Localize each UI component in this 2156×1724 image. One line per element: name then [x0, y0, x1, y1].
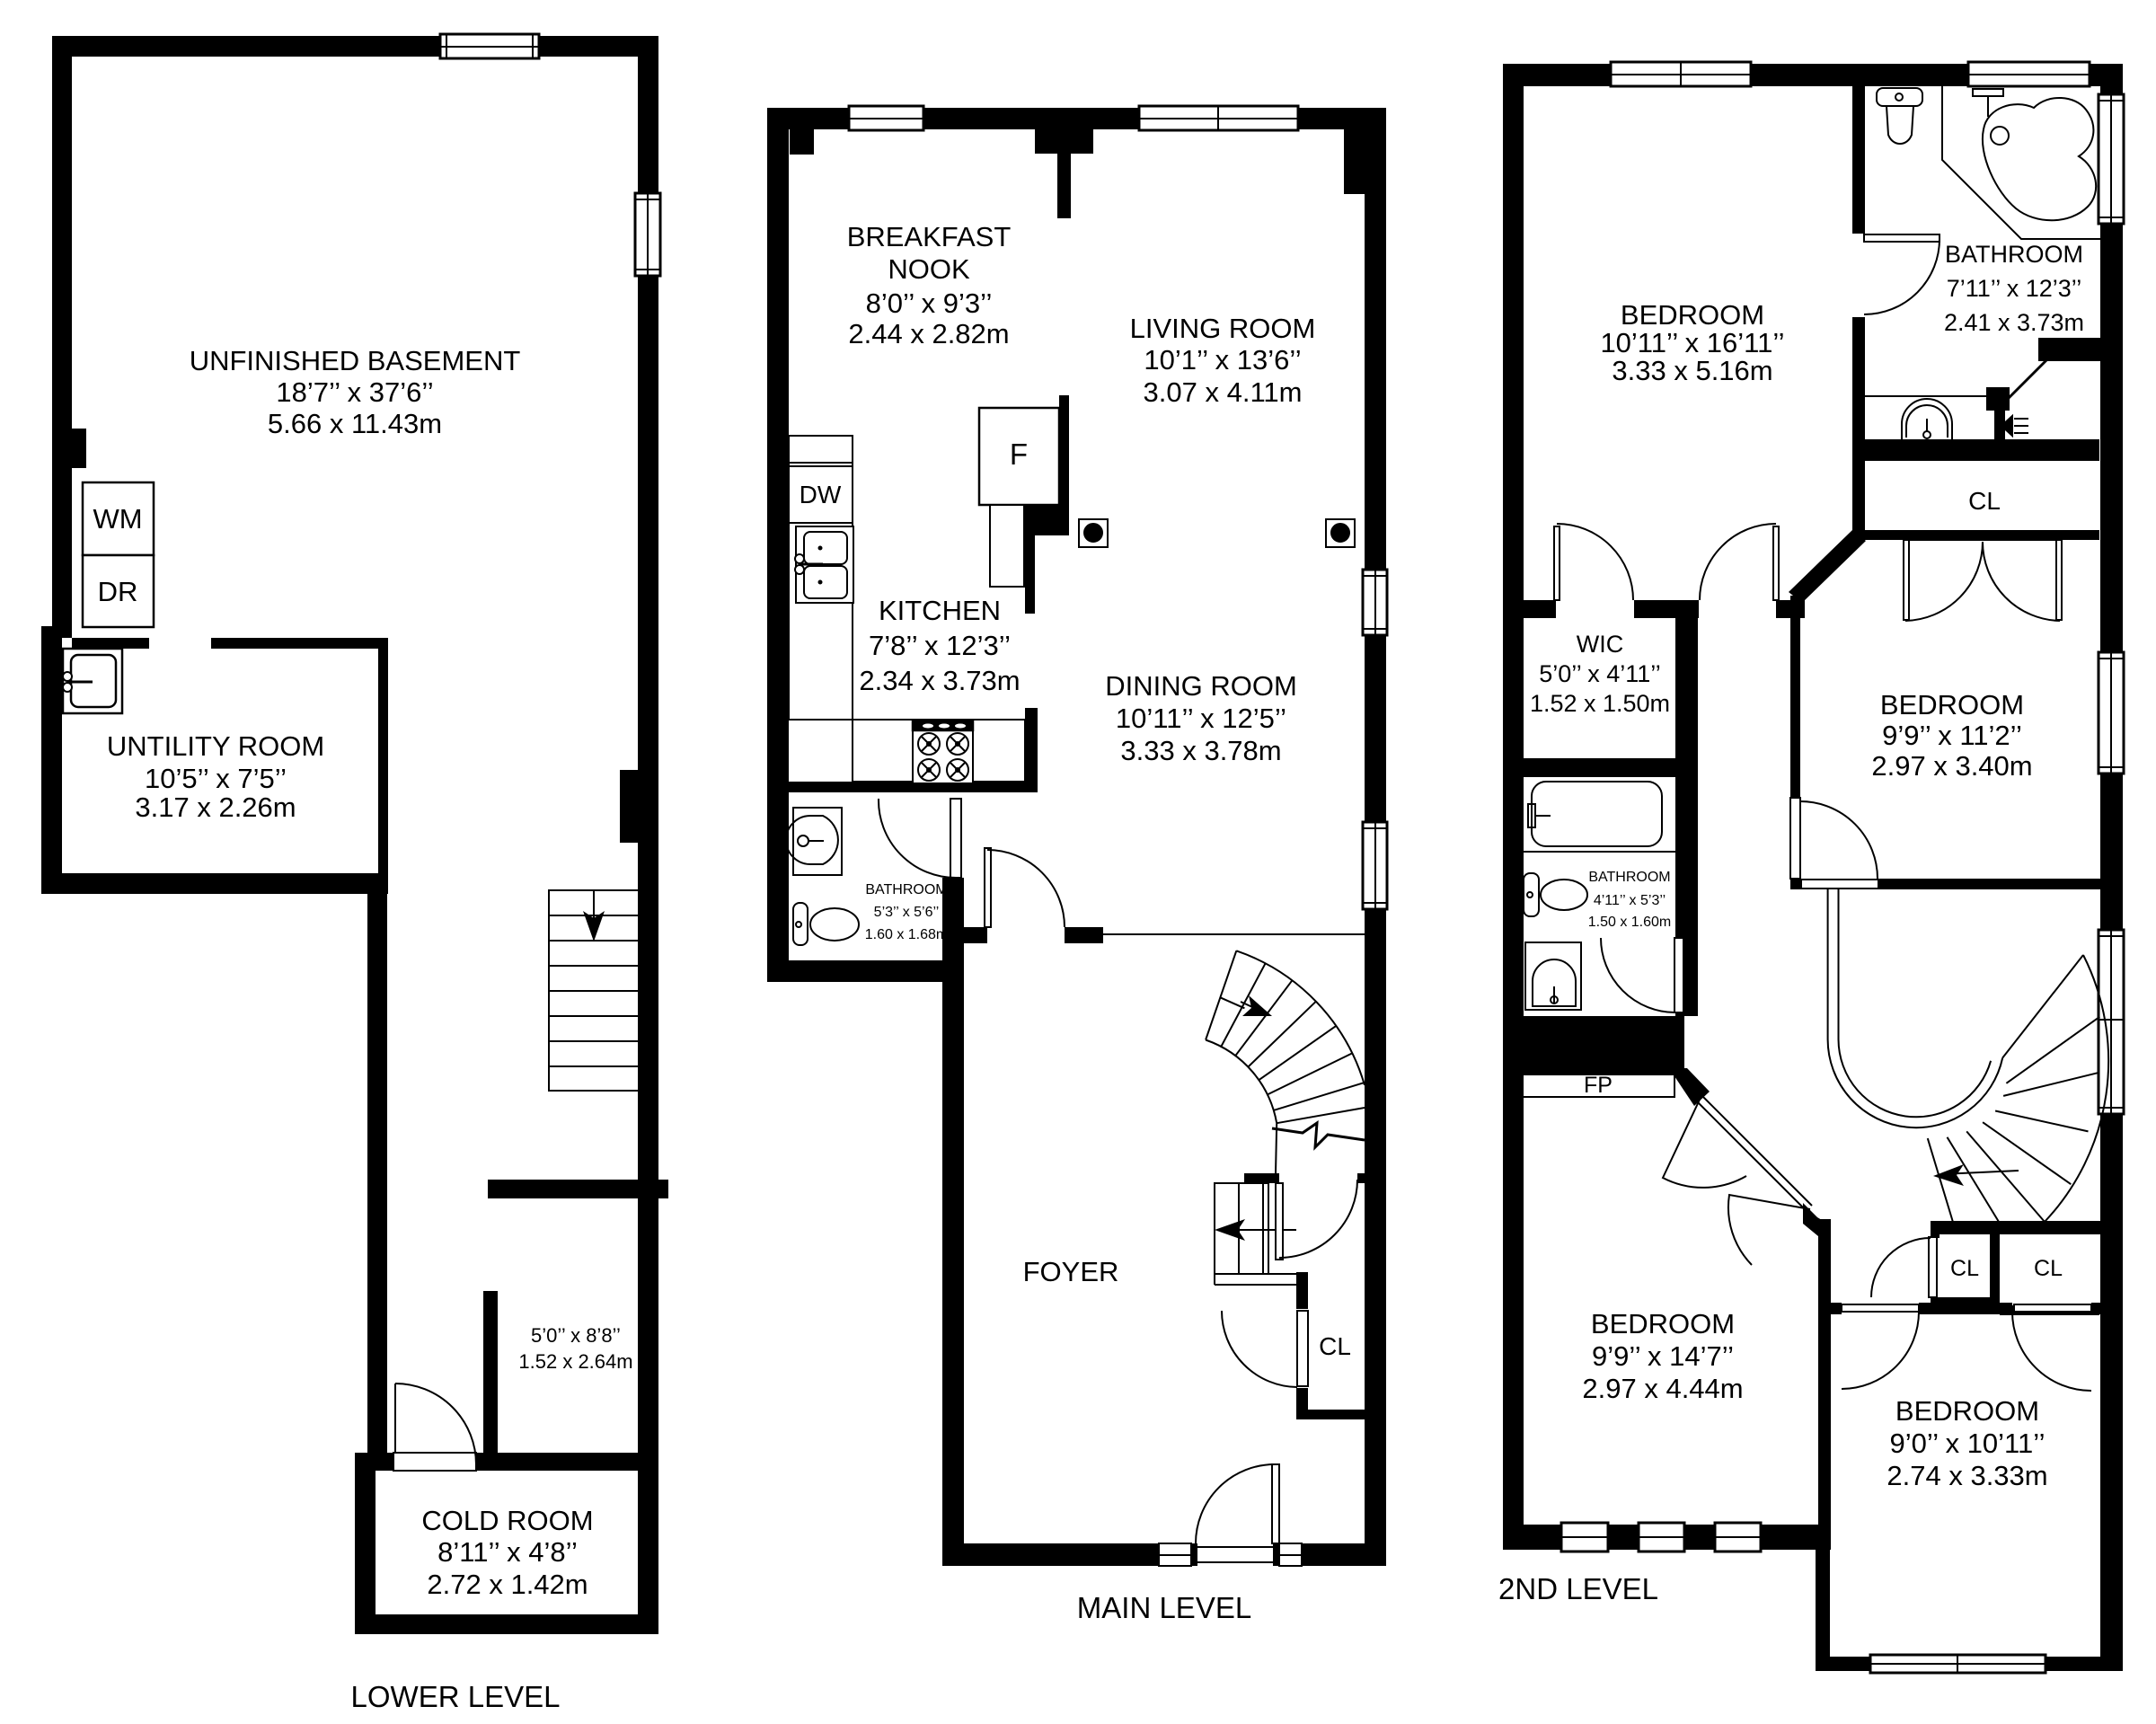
- svg-text:2.34 x 3.73m: 2.34 x 3.73m: [859, 665, 1020, 696]
- svg-text:2ND LEVEL: 2ND LEVEL: [1498, 1572, 1658, 1605]
- svg-text:2.97 x 4.44m: 2.97 x 4.44m: [1582, 1373, 1743, 1404]
- svg-text:10’11’’ x 16’11’’: 10’11’’ x 16’11’’: [1600, 327, 1784, 358]
- svg-text:BEDROOM: BEDROOM: [1895, 1395, 2039, 1427]
- svg-text:3.33 x 5.16m: 3.33 x 5.16m: [1612, 355, 1772, 386]
- svg-text:3.07 x 4.11m: 3.07 x 4.11m: [1144, 376, 1303, 408]
- svg-text:5’0’’ x 8’8’’: 5’0’’ x 8’8’’: [531, 1324, 621, 1347]
- svg-text:10’11’’ x 12’5’’: 10’11’’ x 12’5’’: [1116, 703, 1286, 734]
- svg-text:BATHROOM: BATHROOM: [1588, 870, 1670, 885]
- svg-text:BEDROOM: BEDROOM: [1880, 689, 2024, 721]
- svg-text:NOOK: NOOK: [888, 253, 970, 285]
- svg-text:CL: CL: [2034, 1256, 2063, 1281]
- svg-text:8’0’’ x 9’3’’: 8’0’’ x 9’3’’: [866, 287, 993, 319]
- svg-text:2.74 x 3.33m: 2.74 x 3.33m: [1886, 1460, 2047, 1491]
- svg-text:2.44 x 2.82m: 2.44 x 2.82m: [848, 318, 1009, 349]
- svg-text:1.50 x 1.60m: 1.50 x 1.60m: [1588, 915, 1672, 930]
- svg-text:2.97 x 3.40m: 2.97 x 3.40m: [1871, 750, 2032, 782]
- svg-text:COLD ROOM: COLD ROOM: [421, 1505, 593, 1536]
- svg-text:WM: WM: [93, 503, 142, 535]
- svg-text:5’3’’ x 5’6’’: 5’3’’ x 5’6’’: [874, 905, 940, 920]
- svg-text:UNTILITY ROOM: UNTILITY ROOM: [107, 730, 324, 762]
- svg-text:BREAKFAST: BREAKFAST: [847, 221, 1012, 252]
- svg-text:5’0’’ x 4’11’’: 5’0’’ x 4’11’’: [1539, 660, 1661, 687]
- svg-text:LOWER LEVEL: LOWER LEVEL: [351, 1680, 561, 1713]
- svg-text:9’9’’ x 14’7’’: 9’9’’ x 14’7’’: [1592, 1340, 1734, 1372]
- svg-text:2.72 x 1.42m: 2.72 x 1.42m: [427, 1569, 588, 1600]
- svg-text:FP: FP: [1584, 1073, 1613, 1098]
- svg-text:10’1’’ x 13’6’’: 10’1’’ x 13’6’’: [1144, 344, 1301, 376]
- svg-text:CL: CL: [1950, 1256, 1979, 1281]
- svg-text:9’0’’ x 10’11’’: 9’0’’ x 10’11’’: [1890, 1428, 2046, 1459]
- svg-text:9’9’’ x 11’2’’: 9’9’’ x 11’2’’: [1882, 720, 2022, 751]
- svg-text:BEDROOM: BEDROOM: [1621, 299, 1764, 331]
- svg-text:18’7’’ x 37’6’’: 18’7’’ x 37’6’’: [276, 376, 433, 408]
- svg-text:LIVING ROOM: LIVING ROOM: [1130, 313, 1316, 344]
- svg-text:UNFINISHED BASEMENT: UNFINISHED BASEMENT: [190, 345, 521, 376]
- svg-text:1.52 x 2.64m: 1.52 x 2.64m: [518, 1350, 632, 1373]
- svg-text:BATHROOM: BATHROOM: [1945, 241, 2083, 268]
- svg-text:DR: DR: [98, 576, 138, 607]
- svg-text:DW: DW: [800, 481, 842, 508]
- svg-text:3.33 x 3.78m: 3.33 x 3.78m: [1120, 735, 1281, 766]
- svg-text:3.17 x 2.26m: 3.17 x 2.26m: [135, 791, 296, 823]
- svg-text:BATHROOM: BATHROOM: [865, 882, 947, 897]
- svg-text:WIC: WIC: [1577, 631, 1623, 658]
- svg-text:2.41 x 3.73m: 2.41 x 3.73m: [1944, 309, 2084, 336]
- svg-text:KITCHEN: KITCHEN: [879, 595, 1001, 626]
- svg-text:FOYER: FOYER: [1023, 1256, 1119, 1287]
- svg-text:4’11’’ x 5’3’’: 4’11’’ x 5’3’’: [1594, 893, 1666, 908]
- svg-text:5.66 x 11.43m: 5.66 x 11.43m: [268, 408, 442, 439]
- svg-text:7’11’’ x 12’3’’: 7’11’’ x 12’3’’: [1947, 275, 2082, 302]
- svg-text:8’11’’ x 4’8’’: 8’11’’ x 4’8’’: [437, 1536, 578, 1568]
- svg-text:BEDROOM: BEDROOM: [1591, 1308, 1735, 1339]
- svg-text:1.52 x 1.50m: 1.52 x 1.50m: [1530, 690, 1670, 717]
- svg-text:CL: CL: [1319, 1332, 1351, 1360]
- svg-text:CL: CL: [1968, 487, 2001, 515]
- svg-text:10’5’’ x 7’5’’: 10’5’’ x 7’5’’: [145, 763, 287, 794]
- svg-text:DINING ROOM: DINING ROOM: [1105, 670, 1297, 702]
- svg-text:1.60 x 1.68m: 1.60 x 1.68m: [865, 927, 949, 942]
- svg-text:7’8’’ x 12’3’’: 7’8’’ x 12’3’’: [869, 630, 1011, 661]
- svg-text:MAIN LEVEL: MAIN LEVEL: [1077, 1591, 1251, 1624]
- svg-text:F: F: [1010, 438, 1028, 471]
